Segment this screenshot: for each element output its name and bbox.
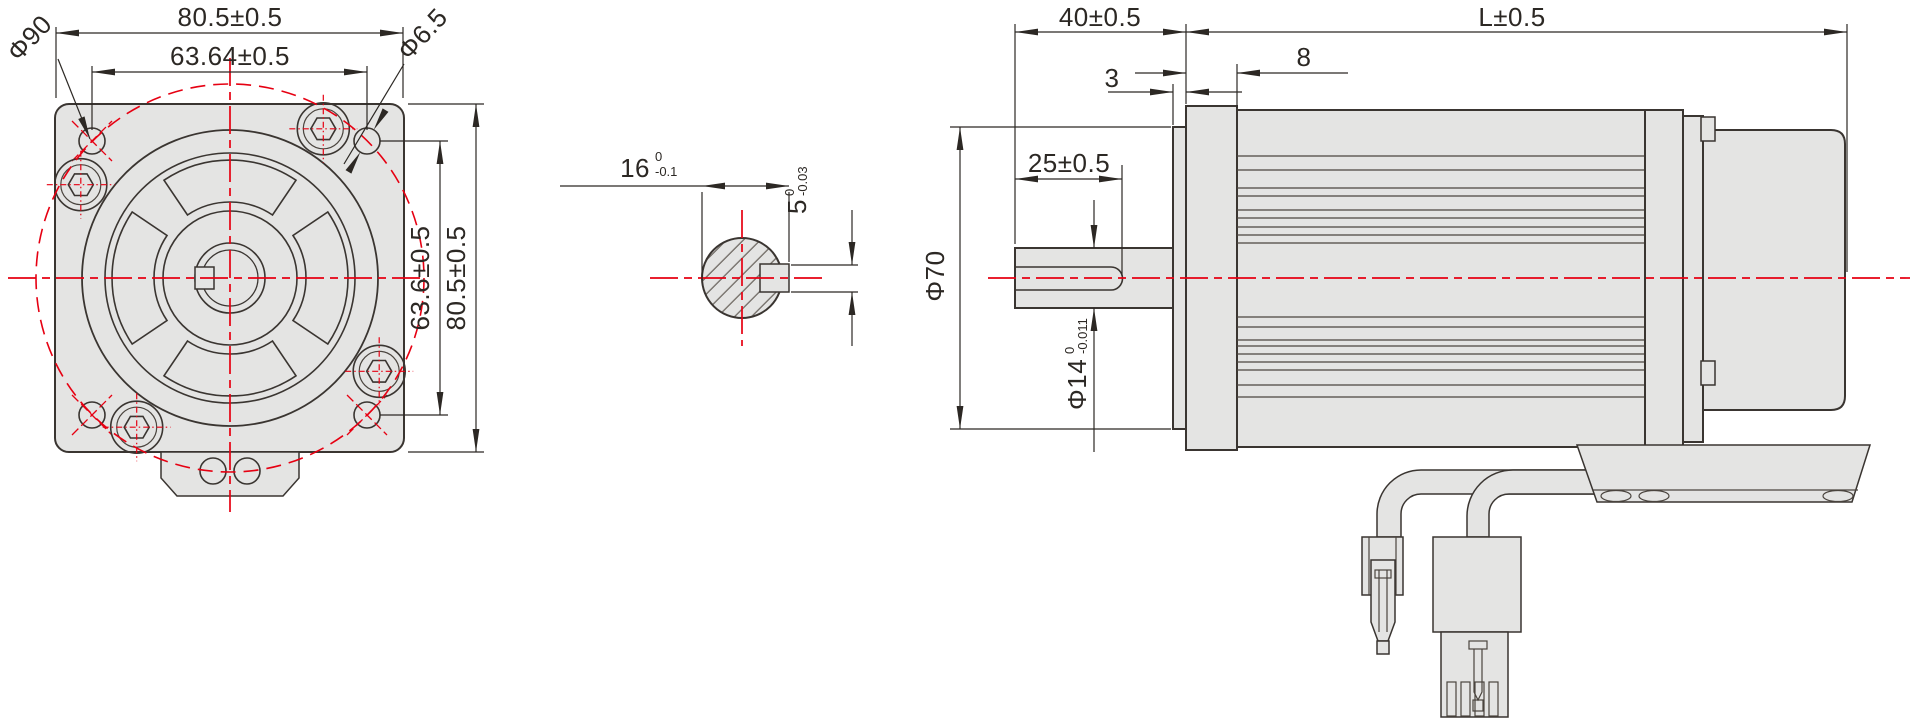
- drawing-canvas: 80.5±0.5 63.64±0.5 Φ90 Φ6.5 63.6±0.5: [0, 0, 1913, 719]
- dim-across-tol-lo: -0.1: [655, 164, 677, 179]
- cover-clip-bottom: [1701, 361, 1715, 385]
- dim-across-tol-hi: 0: [655, 149, 662, 164]
- dim-across: 16: [620, 153, 650, 183]
- dim-hole-dia: Φ6.5: [391, 2, 453, 66]
- dim-boss-height: 3: [1105, 63, 1120, 93]
- shaft-section-view: 16 0 -0.1 5 0 -0.03: [560, 149, 858, 346]
- dim-key-width: 5: [782, 199, 812, 214]
- engineering-drawing: 80.5±0.5 63.64±0.5 Φ90 Φ6.5 63.6±0.5: [0, 0, 1913, 719]
- side-view: 40±0.5 L±0.5 8 3 25±0.5 Φ70 Φ: [920, 2, 1910, 717]
- dim-shaft-tol-lo: -0.011: [1075, 318, 1090, 354]
- dim-shaft-dia: Φ14: [1062, 359, 1092, 410]
- cables: [1377, 470, 1609, 537]
- dim-front-hole-pitch-h: 63.64±0.5: [170, 41, 290, 71]
- dim-boss-dia: Φ70: [920, 250, 950, 301]
- dim-front-hole-pitch-v: 63.6±0.5: [405, 225, 435, 330]
- dim-flange-thickness: 8: [1297, 42, 1312, 72]
- section-dimensions: 16 0 -0.1 5 0 -0.03: [560, 149, 858, 346]
- encoder-cover: [1703, 130, 1845, 410]
- dim-bolt-circle: Φ90: [1, 9, 58, 67]
- dim-shaft-length: 40±0.5: [1059, 2, 1141, 32]
- power-cable: [1467, 470, 1609, 537]
- encoder-connector: [1362, 537, 1403, 654]
- dim-body-length: L±0.5: [1478, 2, 1545, 32]
- cable-bracket: [1577, 445, 1870, 502]
- power-connector: [1433, 537, 1521, 717]
- front-view: 80.5±0.5 63.64±0.5 Φ90 Φ6.5 63.6±0.5: [1, 2, 484, 512]
- dim-key-tol-lo: -0.03: [795, 166, 810, 196]
- dim-front-width: 80.5±0.5: [177, 2, 282, 32]
- dim-key-length: 25±0.5: [1028, 148, 1110, 178]
- junction-strip: [1683, 116, 1703, 442]
- cover-clip-top: [1701, 117, 1715, 141]
- dim-front-height: 80.5±0.5: [441, 225, 471, 330]
